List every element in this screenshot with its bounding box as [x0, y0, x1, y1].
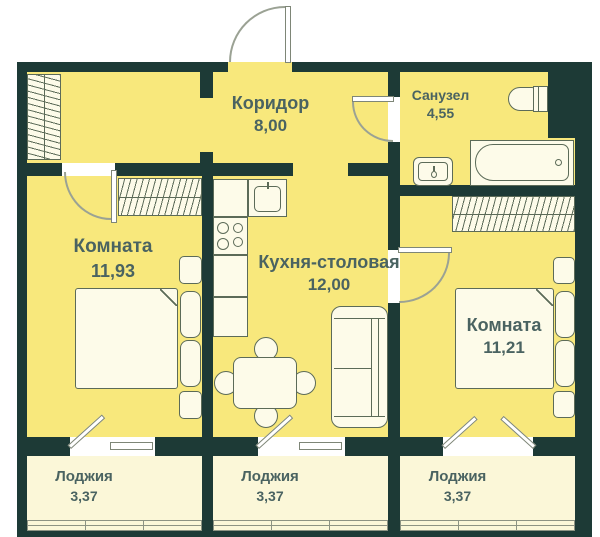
- wall-shaft: [548, 68, 577, 138]
- loggia-glazing-left: [27, 520, 202, 531]
- wardrobe-rail: [44, 75, 45, 159]
- label-loggia-middle: Лоджия 3,37: [214, 467, 326, 505]
- loggia-glazing-right: [400, 520, 575, 531]
- washbasin: [413, 157, 453, 186]
- kitchen-sink: [248, 179, 287, 217]
- room-area: 8,00: [198, 115, 343, 137]
- label-room-right: Комната 11,21: [440, 314, 568, 359]
- label-loggia-left: Лоджия 3,37: [28, 467, 140, 505]
- bathtub: [470, 140, 574, 186]
- wardrobe-room-right: [452, 196, 575, 232]
- room-name: Комната: [38, 235, 188, 260]
- wall-bottom-room-left-b: [155, 437, 202, 456]
- room-area: 3,37: [28, 487, 140, 505]
- entrance-door-leaf: [285, 6, 291, 63]
- dining-table: [233, 357, 297, 409]
- sofa-backrest-line: [378, 318, 379, 417]
- sofa-seat-divider: [334, 368, 372, 369]
- room-name: Кухня-столовая: [243, 251, 415, 274]
- blanket-fold: [160, 289, 177, 306]
- floor-plan: Коридор 8,00 Санузел 4,55 Комната 11,93 …: [0, 0, 600, 537]
- wall-right: [575, 62, 592, 537]
- pillow: [180, 340, 201, 387]
- room-name: Лоджия: [28, 467, 140, 487]
- window-left: [110, 442, 153, 450]
- stove-burner: [217, 238, 229, 250]
- wall-bath-bottom: [400, 185, 577, 196]
- wall-bottom-edge: [17, 531, 592, 537]
- bathroom-door-leaf: [352, 96, 394, 102]
- wall-left: [17, 62, 27, 537]
- wall-bottom-room-right-b: [533, 437, 575, 456]
- balcony-door-right-opening: [443, 437, 533, 456]
- room-name: Санузел: [393, 86, 488, 104]
- pillow: [180, 291, 201, 338]
- kitchen-counter-a: [213, 179, 248, 217]
- label-corridor: Коридор 8,00: [198, 92, 343, 137]
- window-kitchen: [299, 442, 342, 450]
- wardrobe-corridor: [27, 74, 61, 160]
- room-area: 3,37: [214, 487, 326, 505]
- room-name: Лоджия: [214, 467, 326, 487]
- bathtub-drain: [555, 159, 562, 166]
- room-name: Комната: [440, 314, 568, 337]
- kitchen-counter-c: [213, 297, 248, 337]
- washbasin-faucet-stem: [433, 166, 435, 171]
- toilet-tank-line: [538, 87, 539, 111]
- room-name: Коридор: [198, 92, 343, 115]
- room-area: 3,37: [400, 487, 515, 505]
- nightstand: [553, 391, 575, 418]
- sink-basin: [254, 186, 281, 212]
- wall-bottom-kitchen-b: [345, 437, 388, 456]
- wall-kitchen-room-lower: [388, 303, 400, 537]
- room-area: 12,00: [243, 274, 415, 296]
- stove-burner: [233, 223, 243, 233]
- blanket-fold: [536, 289, 553, 306]
- room-left-door-leaf: [111, 170, 117, 223]
- wall-center-vertical: [202, 163, 213, 537]
- toilet-bowl: [508, 87, 535, 111]
- wall-top-right: [292, 62, 592, 72]
- room-area: 11,93: [38, 260, 188, 283]
- wall-bottom-room-right-a: [400, 437, 443, 456]
- wall-bottom-room-left-a: [17, 437, 70, 456]
- room-area: 11,21: [440, 337, 568, 359]
- toilet-tank: [533, 86, 548, 112]
- wardrobe-rail: [453, 214, 574, 215]
- label-bathroom: Санузел 4,55: [393, 86, 488, 122]
- wall-bath-left-mid: [388, 142, 400, 250]
- wall-corridor-room-a: [17, 163, 62, 176]
- label-room-left: Комната 11,93: [38, 235, 188, 283]
- kitchen-stove: [213, 217, 248, 255]
- loggia-glazing-middle: [213, 520, 388, 531]
- room-area: 4,55: [393, 104, 488, 122]
- sink-faucet: [267, 182, 269, 189]
- nightstand: [179, 391, 202, 419]
- stove-burner: [217, 222, 229, 234]
- room-name: Лоджия: [400, 467, 515, 487]
- wall-bottom-kitchen-a: [213, 437, 258, 456]
- wardrobe-room-left: [118, 178, 202, 216]
- bed-left: [75, 288, 178, 389]
- label-loggia-right: Лоджия 3,37: [400, 467, 515, 505]
- entrance-opening: [228, 62, 292, 72]
- label-kitchen: Кухня-столовая 12,00: [243, 251, 415, 296]
- sofa: [331, 306, 388, 428]
- wall-top-left: [17, 62, 228, 72]
- nightstand: [553, 257, 575, 284]
- stove-burner: [233, 237, 243, 247]
- washbasin-faucet: [431, 171, 437, 178]
- wardrobe-rail: [119, 197, 201, 198]
- entrance-door-arc: [229, 6, 285, 62]
